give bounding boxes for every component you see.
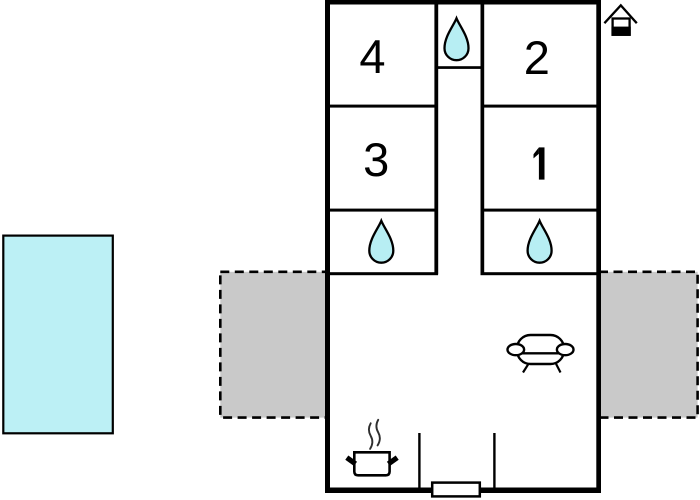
svg-text:3: 3 (363, 133, 389, 186)
svg-text:4: 4 (359, 30, 385, 83)
svg-text:2: 2 (524, 31, 550, 84)
